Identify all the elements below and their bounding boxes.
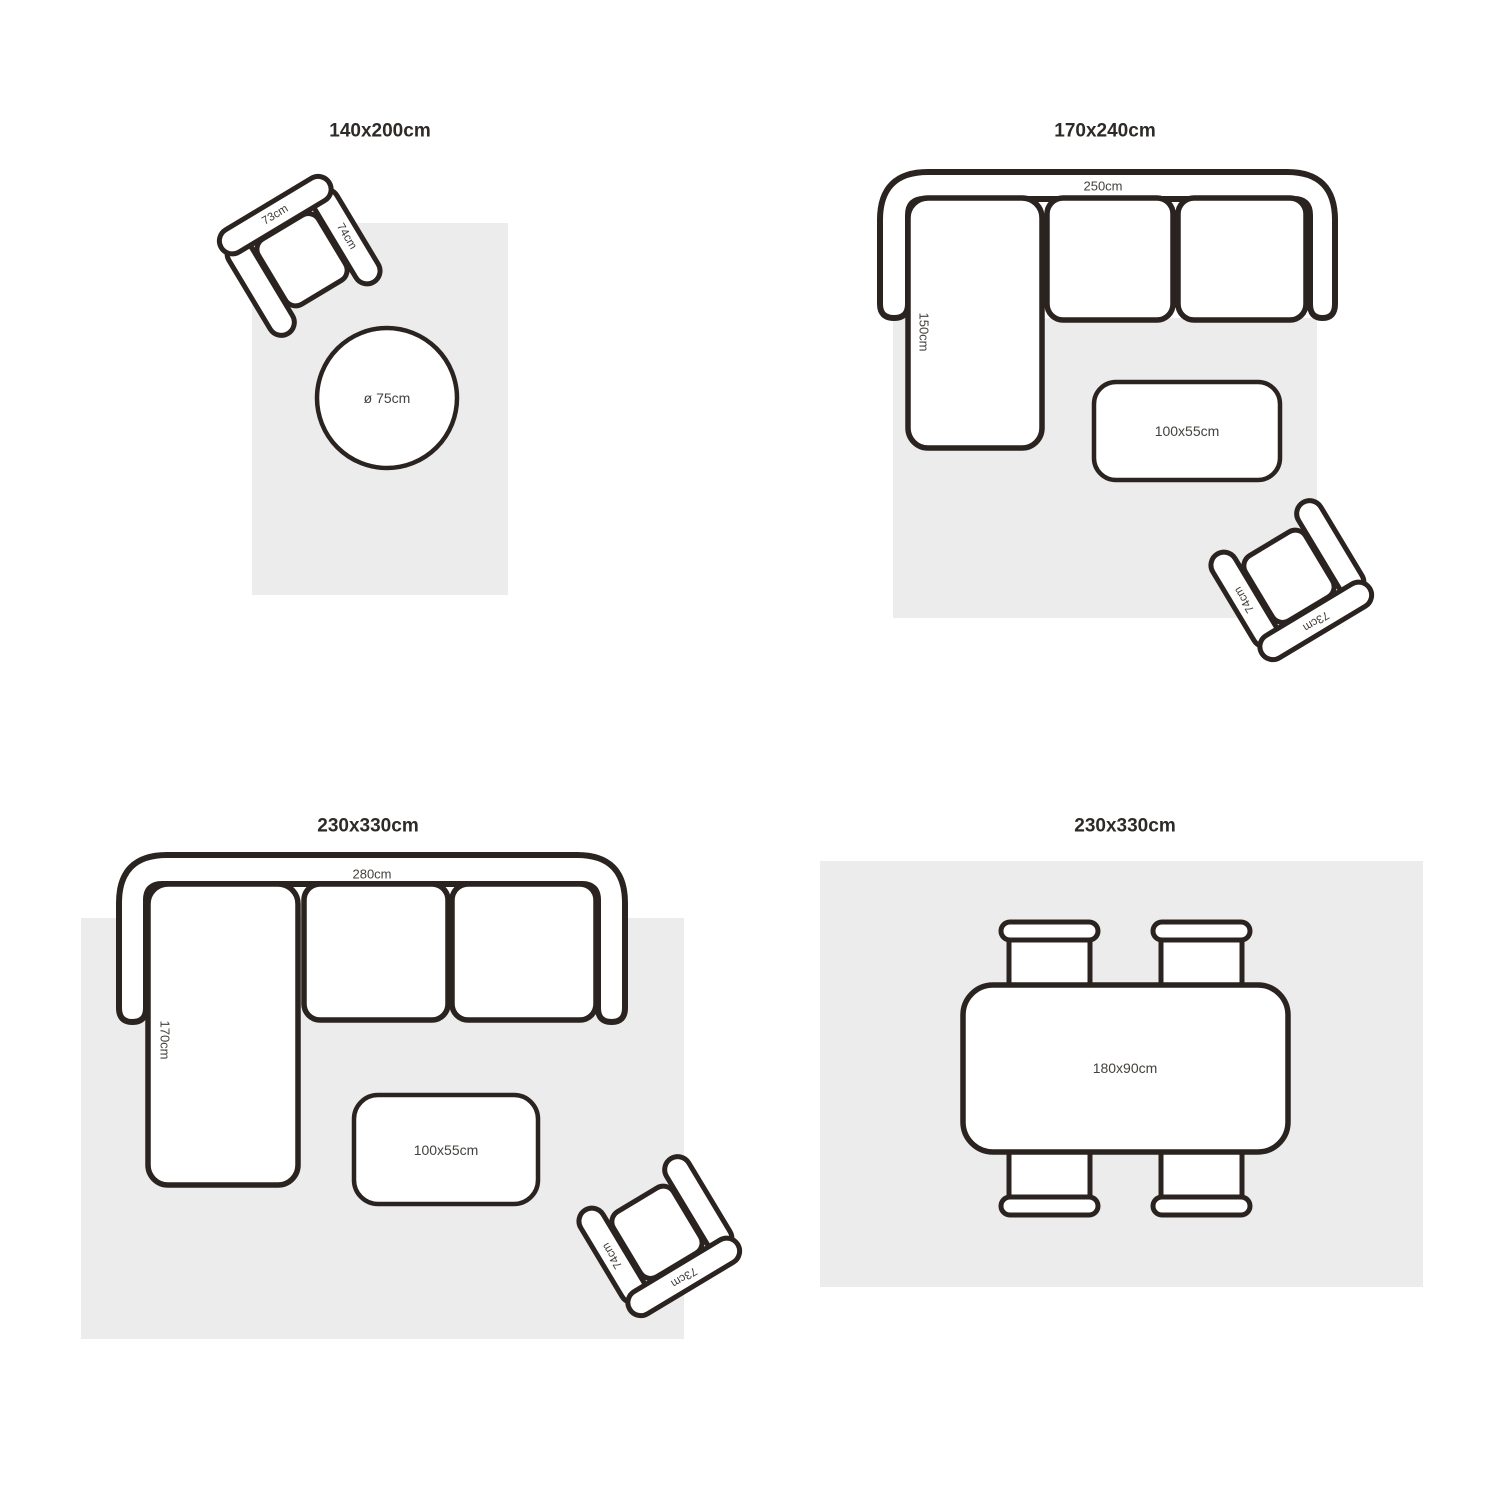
chaise-depth-dimension: 170cm xyxy=(159,1020,172,1059)
size-title-230x330-dining: 230x330cm xyxy=(1074,817,1175,836)
round-table-dimension: ø 75cm xyxy=(364,391,411,405)
dining-chair xyxy=(1153,922,1250,991)
layout-140x200: 73cm 74cm xyxy=(0,0,750,750)
coffee-table-dimension: 100x55cm xyxy=(1155,424,1220,438)
sofa-width-dimension: 250cm xyxy=(1083,180,1122,193)
chair-backrest xyxy=(1001,922,1098,940)
dining-chair xyxy=(1153,1146,1250,1215)
sofa-cushion xyxy=(304,884,448,1020)
sofa-cushion xyxy=(1178,198,1306,320)
coffee-table-dimension: 100x55cm xyxy=(414,1143,479,1157)
size-title-170x240: 170x240cm xyxy=(1054,122,1155,141)
chair-backrest xyxy=(1153,1197,1250,1215)
sofa-cushion xyxy=(1047,198,1173,320)
size-title-140x200: 140x200cm xyxy=(329,122,430,141)
rug-size-guide: 73cm 74cm 73cm 74cm xyxy=(0,0,1500,1500)
chair-backrest xyxy=(1001,1197,1098,1215)
dining-chair xyxy=(1001,1146,1098,1215)
chair-backrest xyxy=(1153,922,1250,940)
layout-230x330-sofa: 73cm 74cm xyxy=(0,750,750,1500)
sofa-cushion xyxy=(452,884,596,1020)
sofa-width-dimension: 280cm xyxy=(352,868,391,881)
layout-230x330-dining xyxy=(750,750,1500,1500)
layout-170x240: 73cm 74cm xyxy=(750,0,1500,750)
dining-table-dimension: 180x90cm xyxy=(1093,1061,1158,1075)
chaise-depth-dimension: 150cm xyxy=(918,312,931,351)
dining-chair xyxy=(1001,922,1098,991)
size-title-230x330-sofa: 230x330cm xyxy=(317,817,418,836)
